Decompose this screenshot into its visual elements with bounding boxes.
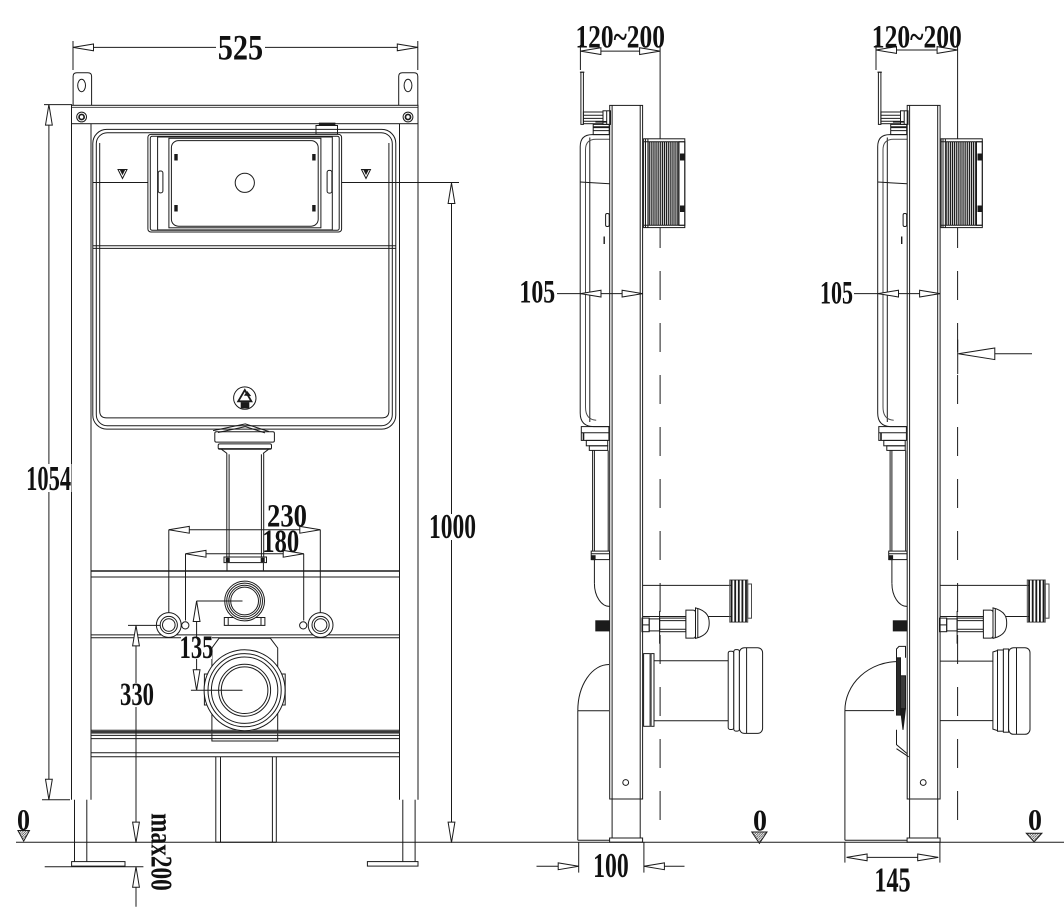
svg-text:120~200: 120~200 xyxy=(575,20,665,56)
svg-text:145: 145 xyxy=(874,861,910,900)
svg-text:525: 525 xyxy=(218,28,263,68)
svg-text:105: 105 xyxy=(820,275,853,311)
svg-text:105: 105 xyxy=(519,275,555,311)
svg-text:max200: max200 xyxy=(145,813,180,891)
svg-text:330: 330 xyxy=(120,677,154,713)
svg-text:120~200: 120~200 xyxy=(872,20,962,56)
svg-text:135: 135 xyxy=(180,630,214,666)
svg-text:100: 100 xyxy=(593,846,629,885)
svg-text:1000: 1000 xyxy=(429,507,476,546)
svg-text:1054: 1054 xyxy=(26,459,71,498)
svg-text:180: 180 xyxy=(262,524,299,560)
svg-text:0: 0 xyxy=(1028,802,1042,837)
